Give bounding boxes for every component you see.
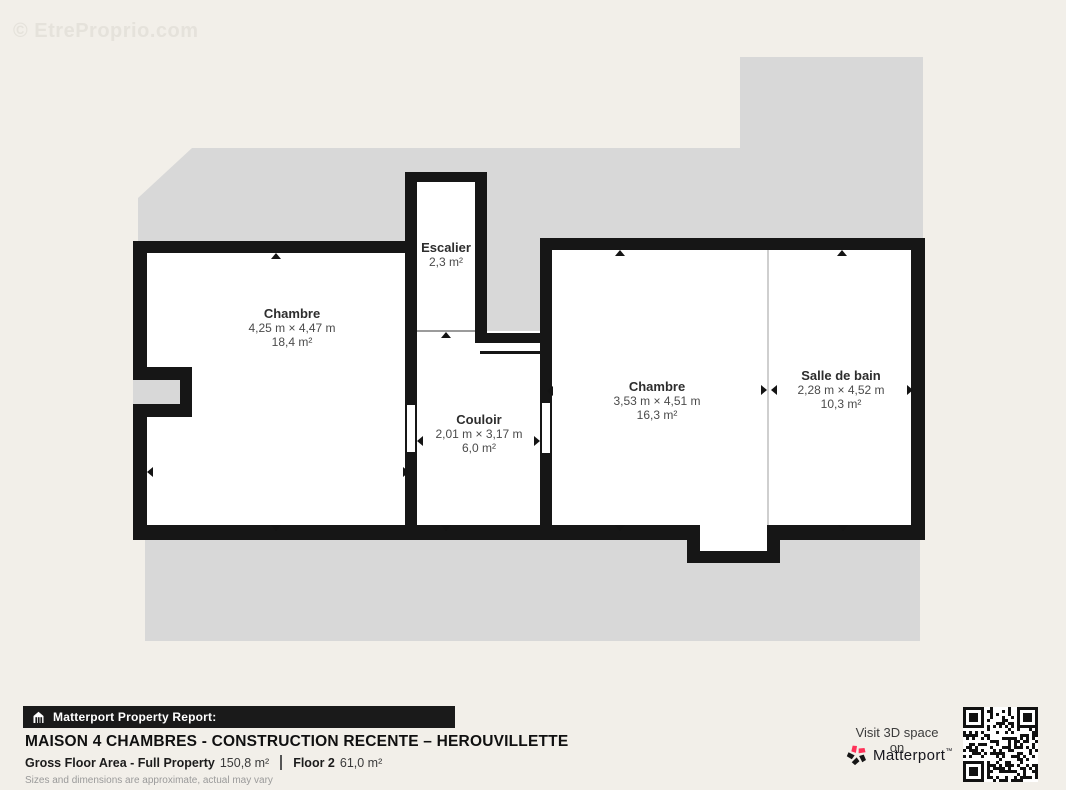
window-marker-icon: [271, 253, 281, 259]
room-dimensions: 4,25 m × 4,47 m: [248, 322, 335, 335]
matterport-wordmark: Matterport™: [873, 747, 953, 764]
floor-plan-page: © EtreProprio.com: [0, 0, 1066, 800]
door-marker-icon: [417, 436, 423, 446]
door-marker-icon: [534, 436, 540, 446]
qr-code[interactable]: [963, 707, 1038, 782]
room-area: 6,0 m²: [435, 442, 522, 455]
report-bar-label: Matterport Property Report:: [53, 710, 216, 724]
partition-line: [767, 250, 769, 525]
floor-plan: Chambre 4,25 m × 4,47 m 18,4 m² Escalier…: [0, 0, 1066, 800]
room-area: 16,3 m²: [613, 409, 700, 422]
room-label-escalier: Escalier 2,3 m²: [421, 241, 471, 269]
door-slot-couloir-right: [542, 403, 550, 453]
wall-right: [911, 238, 925, 540]
room-dimensions: 3,53 m × 4,51 m: [613, 395, 700, 408]
room-label-couloir: Couloir 2,01 m × 3,17 m 6,0 m²: [435, 413, 522, 455]
room-name: Couloir: [435, 413, 522, 427]
floor-label: Floor 2: [293, 756, 335, 770]
room-dimensions: 2,01 m × 3,17 m: [435, 428, 522, 441]
wall-left-upper: [133, 241, 147, 367]
recess-roof-fill: [133, 380, 180, 404]
room-area: 2,3 m²: [421, 256, 471, 269]
window-marker-icon: [271, 525, 281, 531]
wall-escalier-right: [475, 172, 487, 343]
window-marker-icon: [837, 250, 847, 256]
window-marker-icon: [147, 467, 153, 477]
page-title: MAISON 4 CHAMBRES - CONSTRUCTION RECENTE…: [25, 733, 568, 751]
wall-bottom-right-segment: [778, 525, 925, 540]
stats-divider: [280, 755, 282, 770]
wall-chambre-couloir: [405, 172, 417, 540]
roof-area-stair-notch: [487, 148, 540, 333]
room-name: Salle de bain: [797, 369, 884, 383]
room-area: 10,3 m²: [797, 398, 884, 411]
wall-recess-bottom: [133, 404, 192, 417]
floor-value: 61,0 m²: [340, 756, 382, 770]
window-marker-icon: [441, 525, 451, 531]
wall-top-right-section: [540, 238, 925, 250]
roof-area-bottom-band: [145, 540, 920, 641]
disclaimer-text: Sizes and dimensions are approximate, ac…: [25, 775, 273, 786]
roof-area-top-right: [740, 57, 923, 244]
room-protrusion: [700, 525, 767, 551]
gross-floor-area-label: Gross Floor Area - Full Property: [25, 756, 215, 770]
report-bar: Matterport Property Report:: [23, 706, 455, 728]
gross-floor-area-value: 150,8 m²: [220, 756, 269, 770]
door-leaf-line: [480, 351, 540, 354]
door-slot-couloir-left: [407, 405, 415, 452]
wall-left-lower: [133, 417, 147, 540]
trademark-symbol: ™: [945, 748, 952, 755]
door-marker-icon: [403, 467, 409, 477]
door-marker-icon: [771, 385, 777, 395]
room-name: Chambre: [613, 380, 700, 394]
matterport-brand: Matterport™: [846, 744, 953, 766]
matterport-logo-icon: [846, 744, 868, 766]
window-marker-icon: [838, 525, 848, 531]
stair-marker-icon: [441, 332, 451, 338]
room-dimensions: 2,28 m × 4,52 m: [797, 384, 884, 397]
wall-top-left-section: [133, 241, 417, 253]
room-label-salle-de-bain: Salle de bain 2,28 m × 4,52 m 10,3 m²: [797, 369, 884, 411]
window-marker-icon: [615, 250, 625, 256]
wall-bottom-left-segment: [133, 525, 690, 540]
wall-protrusion-bottom: [687, 551, 780, 563]
room-name: Escalier: [421, 241, 471, 255]
door-marker-icon: [907, 385, 913, 395]
room-name: Chambre: [248, 307, 335, 321]
building-icon: [32, 711, 45, 724]
page-bottom-strip: [0, 790, 1066, 800]
room-label-chambre-right: Chambre 3,53 m × 4,51 m 16,3 m²: [613, 380, 700, 422]
door-marker-icon: [761, 385, 767, 395]
room-area: 18,4 m²: [248, 336, 335, 349]
door-marker-icon: [547, 386, 553, 396]
floor-area-stats: Gross Floor Area - Full Property 150,8 m…: [25, 755, 382, 770]
window-marker-icon: [615, 525, 625, 531]
room-label-chambre-left: Chambre 4,25 m × 4,47 m 18,4 m²: [248, 307, 335, 349]
